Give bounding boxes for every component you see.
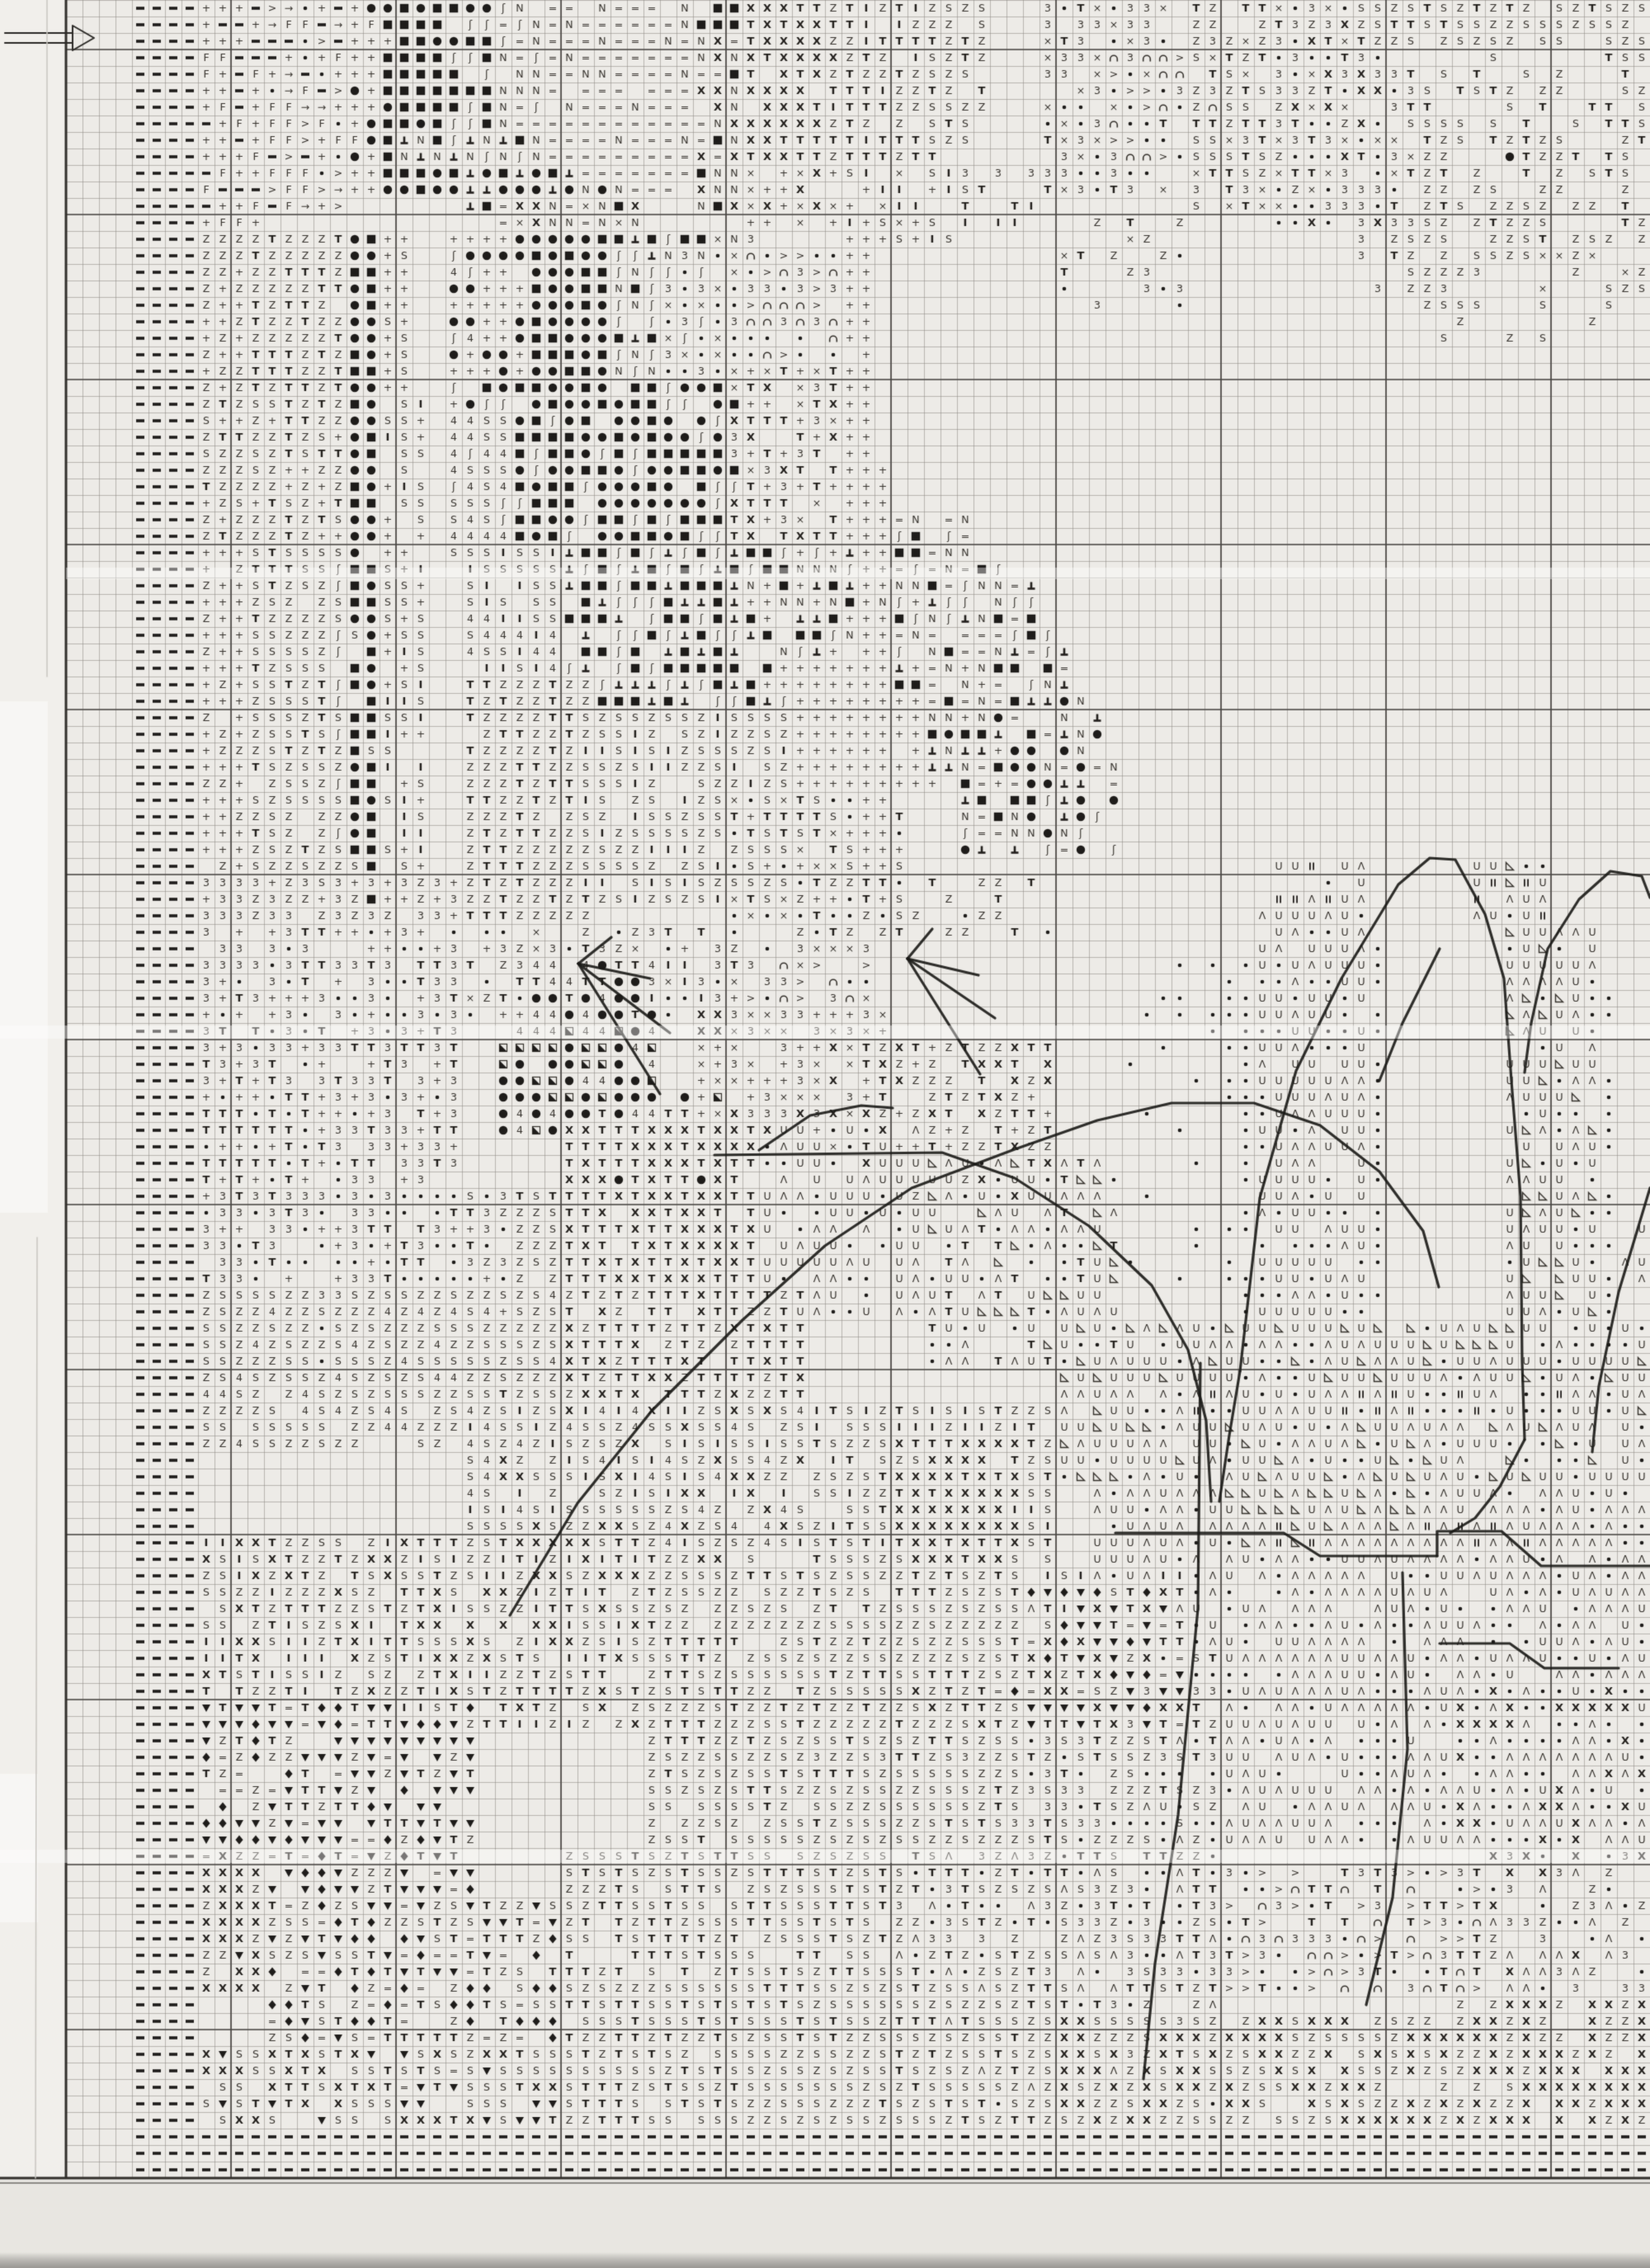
scanned-pattern-page: [0, 0, 1650, 2268]
cross-stitch-chart-canvas: [0, 0, 1650, 2268]
